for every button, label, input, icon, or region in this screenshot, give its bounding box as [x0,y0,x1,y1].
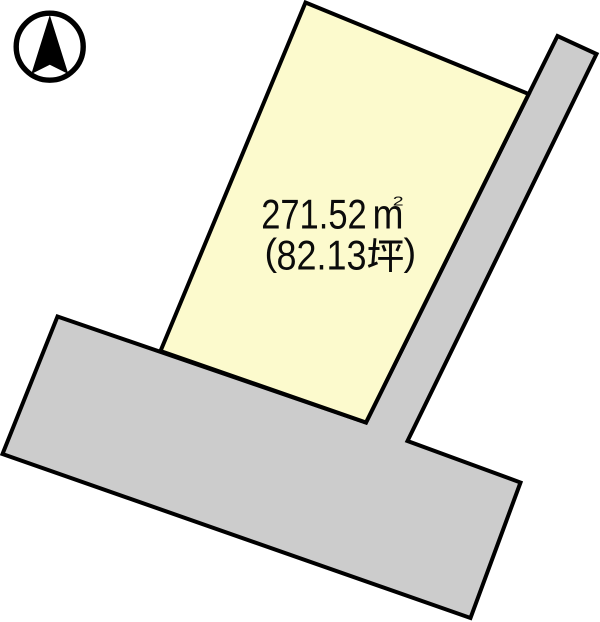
svg-text:): ) [404,232,417,274]
svg-text:82.13: 82.13 [277,233,367,279]
svg-text:2: 2 [393,194,404,209]
svg-text:271.52: 271.52 [261,192,367,238]
